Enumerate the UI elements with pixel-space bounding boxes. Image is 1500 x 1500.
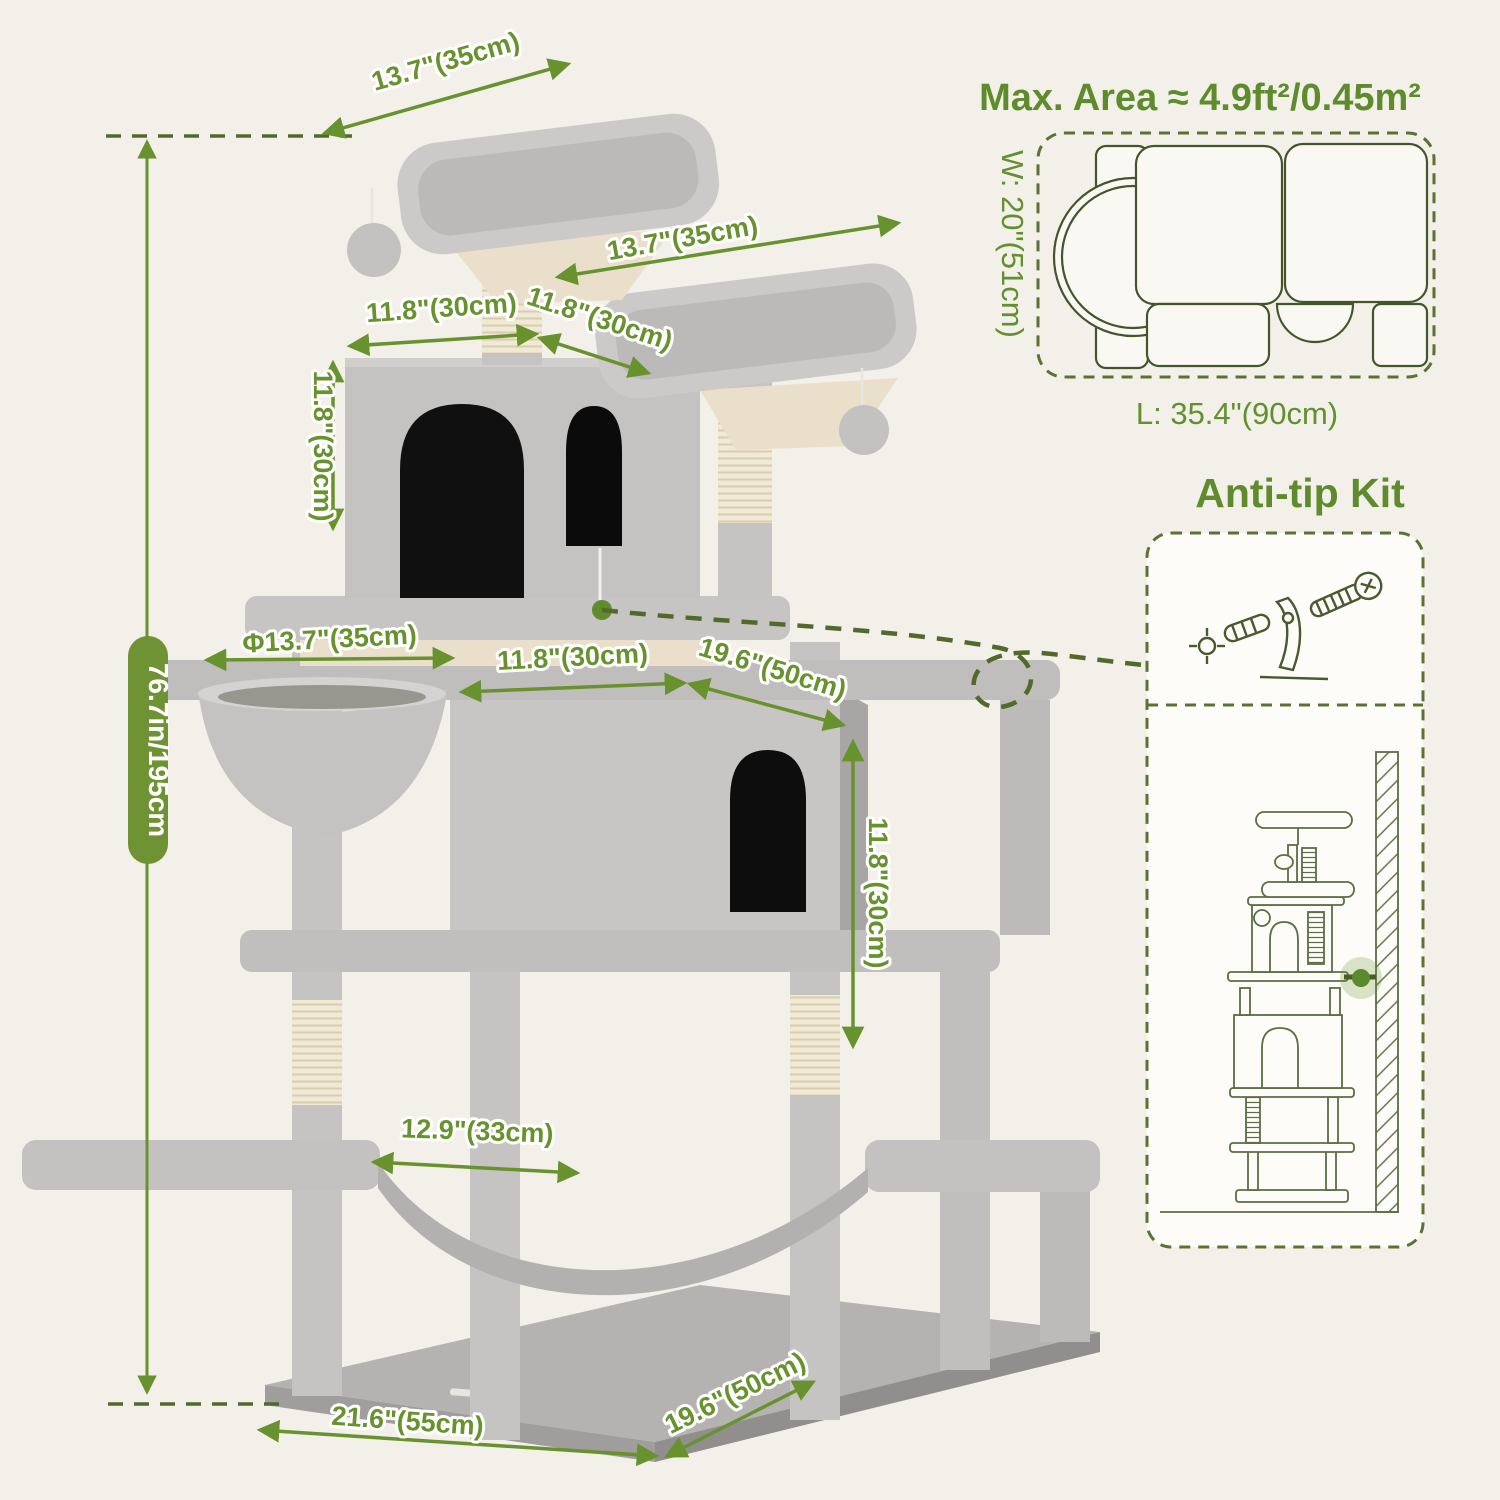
total-height-label: 76.7in/195cm bbox=[143, 663, 174, 837]
footprint-top-view bbox=[1054, 144, 1427, 368]
condo-opening bbox=[400, 404, 524, 598]
pompom-toy bbox=[347, 223, 401, 277]
max-area-panel: Max. Area ≈ 4.9ft²/0.45m² W: 20"(51cm) L… bbox=[979, 77, 1434, 431]
hammock-level bbox=[22, 1140, 1100, 1295]
condo-opening bbox=[730, 750, 806, 912]
sisal-scratching-post bbox=[790, 995, 840, 1095]
anchor-highlight-dot bbox=[1352, 969, 1370, 987]
basket bbox=[198, 677, 448, 836]
large-condo-height-label: 11.8"(30cm) bbox=[863, 818, 893, 969]
pompom-toy bbox=[839, 405, 889, 455]
condo-opening bbox=[566, 406, 622, 546]
footprint-length-label: L: 35.4"(90cm) bbox=[1136, 396, 1338, 431]
right-low-board bbox=[865, 1140, 1100, 1192]
top-platform-label: 13.7"(35cm) bbox=[368, 26, 523, 97]
left-low-board bbox=[22, 1140, 380, 1190]
product-dimension-diagram: 76.7in/195cm 13.7"(35cm) 13.7"(35cm) 11.… bbox=[0, 0, 1500, 1500]
hammock-width-label: 12.9"(33cm) bbox=[401, 1113, 554, 1148]
anti-tip-title: Anti-tip Kit bbox=[1195, 470, 1405, 516]
diagram-svg: 76.7in/195cm 13.7"(35cm) 13.7"(35cm) 11.… bbox=[0, 0, 1500, 1500]
large-condo bbox=[450, 680, 868, 935]
condo-height-label: 11.8"(30cm) bbox=[308, 371, 338, 522]
anti-tip-panel: Anti-tip Kit bbox=[1147, 470, 1423, 1247]
max-area-title: Max. Area ≈ 4.9ft²/0.45m² bbox=[979, 77, 1421, 119]
footprint-width-label: W: 20"(51cm) bbox=[995, 150, 1030, 338]
sisal-scratching-post bbox=[292, 1000, 342, 1105]
